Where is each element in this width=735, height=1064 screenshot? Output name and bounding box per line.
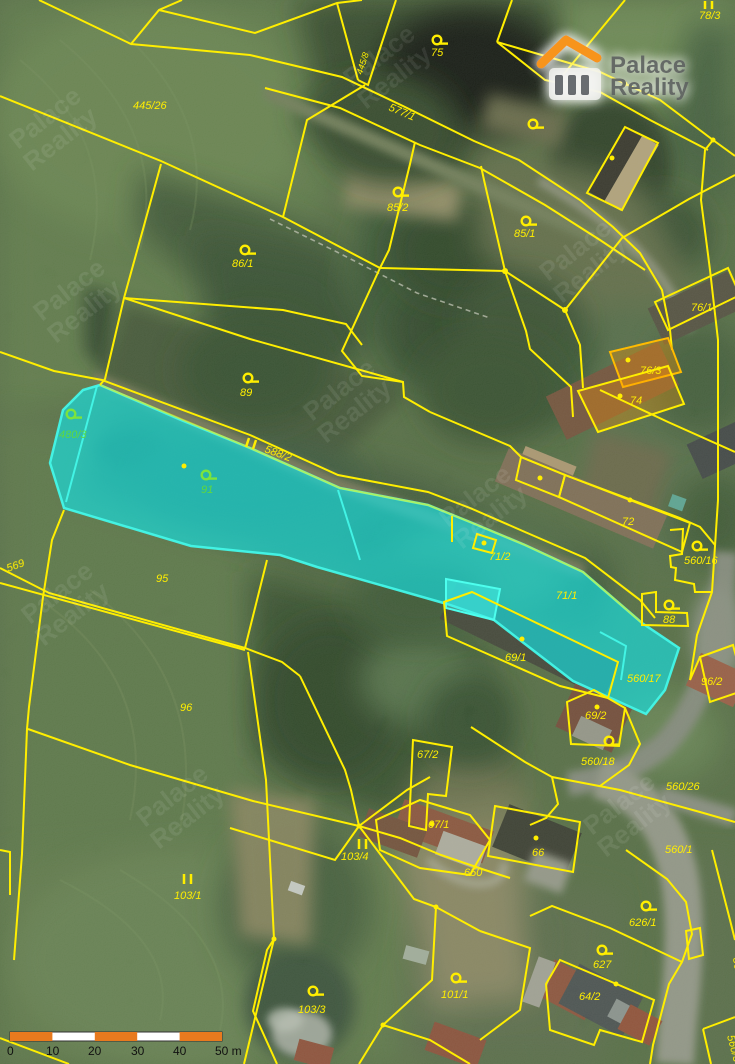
- svg-text:76/3: 76/3: [640, 365, 662, 377]
- svg-text:103/1: 103/1: [174, 890, 202, 902]
- svg-text:650: 650: [464, 867, 483, 879]
- svg-text:30: 30: [131, 1044, 145, 1058]
- svg-text:69/2: 69/2: [585, 710, 606, 722]
- svg-text:101/1: 101/1: [441, 989, 469, 1001]
- svg-text:627: 627: [593, 959, 612, 971]
- svg-text:75: 75: [431, 47, 444, 59]
- svg-text:76/1: 76/1: [691, 302, 712, 314]
- svg-text:85/1: 85/1: [514, 228, 535, 240]
- svg-text:626/1: 626/1: [629, 917, 657, 929]
- svg-text:89: 89: [240, 387, 252, 399]
- svg-text:71/2: 71/2: [489, 551, 510, 563]
- svg-text:71/1: 71/1: [556, 590, 577, 602]
- svg-text:67/2: 67/2: [417, 749, 438, 761]
- svg-text:40: 40: [173, 1044, 187, 1058]
- svg-text:96: 96: [180, 702, 193, 714]
- svg-text:50 m: 50 m: [215, 1044, 242, 1058]
- svg-text:88: 88: [663, 614, 676, 626]
- svg-text:10: 10: [46, 1044, 60, 1058]
- svg-text:85/2: 85/2: [387, 202, 408, 214]
- svg-text:66: 66: [532, 847, 545, 859]
- svg-text:64/2: 64/2: [579, 991, 600, 1003]
- svg-text:91: 91: [201, 484, 213, 496]
- svg-text:103/3: 103/3: [298, 1004, 326, 1016]
- svg-text:78/3: 78/3: [699, 10, 721, 22]
- svg-text:480/3: 480/3: [59, 429, 87, 441]
- svg-text:72: 72: [622, 516, 634, 528]
- svg-text:74: 74: [630, 395, 642, 407]
- svg-text:560/16: 560/16: [684, 555, 719, 567]
- svg-text:103/4: 103/4: [341, 851, 369, 863]
- svg-text:Reality: Reality: [610, 74, 689, 101]
- svg-text:95: 95: [156, 573, 169, 585]
- svg-text:86/1: 86/1: [232, 258, 253, 270]
- svg-text:0: 0: [7, 1044, 14, 1058]
- svg-text:560/17: 560/17: [627, 673, 662, 685]
- svg-text:96/2: 96/2: [701, 676, 722, 688]
- svg-text:20: 20: [88, 1044, 102, 1058]
- svg-text:560/26: 560/26: [666, 781, 701, 793]
- svg-text:560/1: 560/1: [665, 844, 693, 856]
- svg-text:445/26: 445/26: [133, 100, 168, 112]
- svg-text:69/1: 69/1: [505, 652, 526, 664]
- svg-text:560/18: 560/18: [581, 756, 616, 768]
